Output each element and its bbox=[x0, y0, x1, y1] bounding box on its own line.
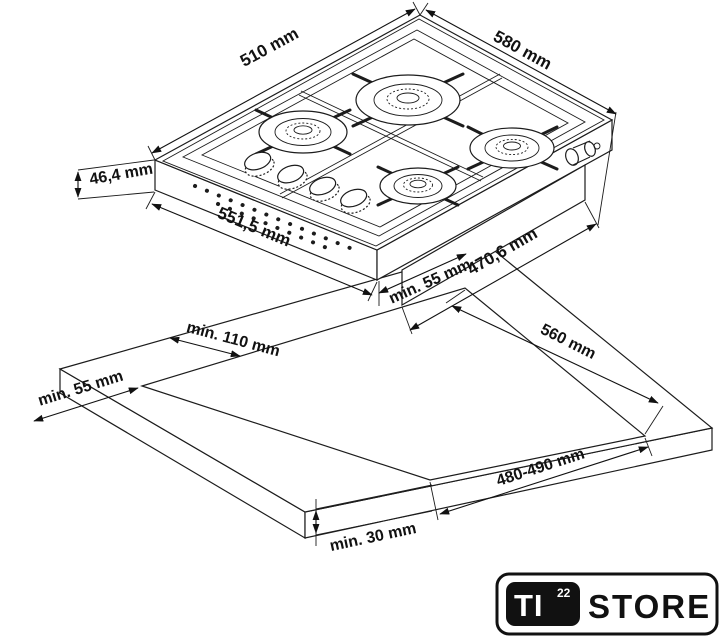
worktop-top-face bbox=[60, 247, 712, 512]
burner-left bbox=[259, 111, 347, 153]
installation-diagram: 510 mm 580 mm 46,4 mm 551,5 mm 470,6 mm … bbox=[0, 0, 722, 640]
burner-front bbox=[380, 168, 456, 204]
installation-diagram-page: 510 mm 580 mm 46,4 mm 551,5 mm 470,6 mm … bbox=[0, 0, 722, 640]
dim-hob-height-label: 46,4 mm bbox=[88, 161, 154, 189]
store-logo: TI 22 STORE bbox=[497, 574, 717, 634]
logo-ti-superscript: 22 bbox=[557, 586, 571, 600]
dim-hob-width-label: 510 mm bbox=[237, 24, 302, 71]
burner-back bbox=[356, 75, 460, 125]
logo-ti-text: TI bbox=[514, 588, 544, 623]
burner-right bbox=[470, 128, 554, 168]
logo-store-text: STORE bbox=[588, 588, 711, 625]
